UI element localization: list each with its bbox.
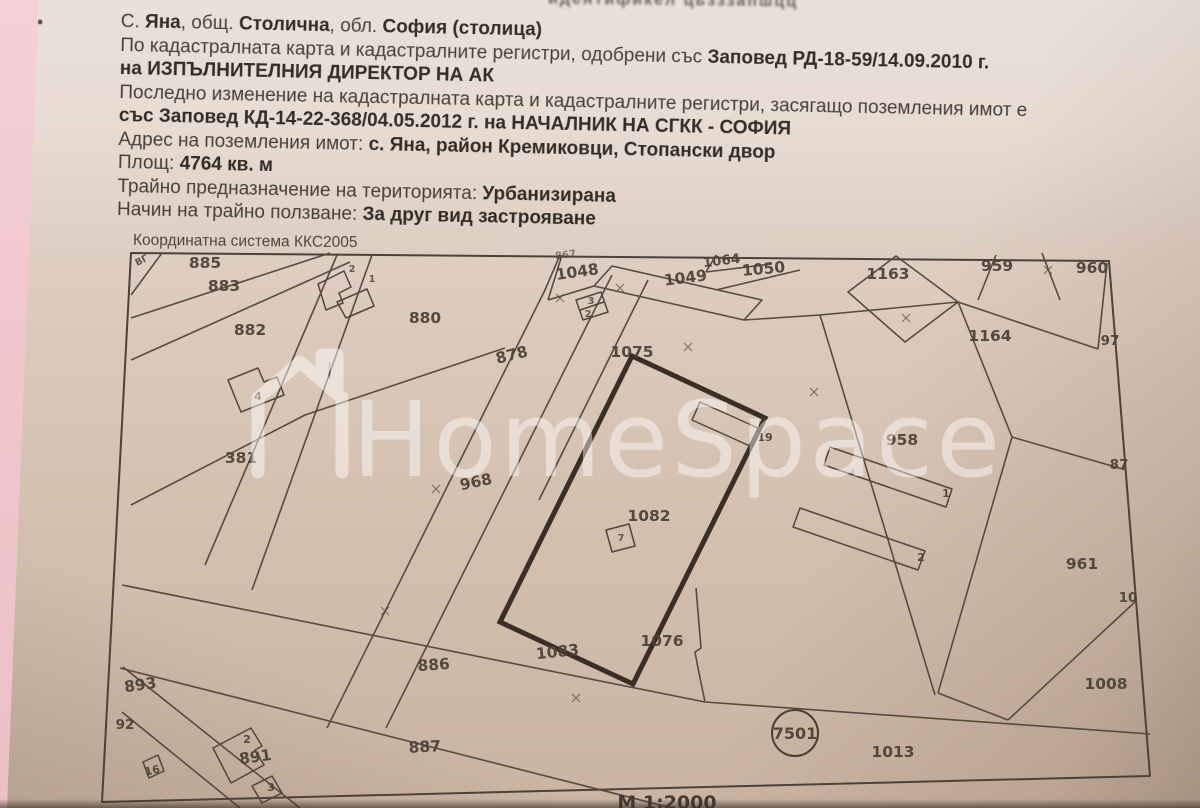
parcel-label-1048: 1048 — [555, 260, 600, 284]
parcel-label-1008: 1008 — [1084, 675, 1127, 693]
text-segment: Столична — [239, 13, 330, 36]
text-segment: Яна — [145, 11, 181, 33]
paper-speck — [38, 20, 43, 25]
building-label-2: 2 — [917, 551, 925, 564]
parcel-label-878: 878 — [494, 343, 530, 368]
parcel-labels: 885 883 882 880 878 381 968 1048 867 104… — [116, 249, 1138, 769]
text-segment: , обл. — [329, 15, 382, 37]
text-segment: Заповед РД-18-59/14.09.2010 г. — [707, 46, 989, 73]
parcel-label-886: 886 — [417, 655, 451, 675]
parcel-label-87-partial: 87 — [1110, 457, 1129, 473]
text-segment: Адрес на поземления имот: — [118, 128, 369, 154]
parcel-label-959: 959 — [981, 257, 1013, 275]
parcel-label-1075: 1075 — [610, 343, 653, 361]
parcel-label-891: 891 — [238, 746, 273, 768]
parcel-label-1082: 1082 — [627, 507, 670, 525]
building-label-16: 16 — [143, 763, 161, 779]
parcel-label-882: 882 — [234, 321, 266, 339]
parcel-label-887: 887 — [408, 737, 441, 757]
parcel-label-1164: 1164 — [968, 327, 1011, 345]
parcel-label-1050: 1050 — [741, 258, 786, 280]
building-label-3-small: 3 — [588, 296, 595, 307]
text-segment: София (столица) — [382, 16, 542, 40]
text-segment: Урбанизирана — [482, 183, 616, 207]
parcel-label-883: 883 — [208, 277, 240, 295]
parcel-label-partial-867: 867 — [555, 249, 577, 263]
point-label-7501: 7501 — [773, 724, 818, 743]
parcel-label-961: 961 — [1066, 555, 1098, 573]
building-label-2-small: 2 — [585, 309, 592, 320]
parcel-label-1083: 1083 — [535, 641, 580, 663]
watermark-text: HomeSpace — [352, 379, 1003, 501]
parcel-label-10-partial: 10 — [1119, 590, 1138, 606]
parcel-label-97-partial: 97 — [1101, 333, 1120, 349]
coordinate-system-label: Координатна система ККС2005 — [133, 232, 358, 252]
building-label-1-strip: 1 — [369, 274, 376, 285]
photographed-cadastral-document: { "document": { "cropped_top_line": "иде… — [0, 0, 1200, 808]
building-label-2-west: 2 — [243, 733, 251, 746]
parcel-label-1076: 1076 — [640, 632, 683, 650]
parcel-label-885: 885 — [189, 254, 221, 272]
parcel-label-893: 893 — [123, 674, 158, 696]
text-segment: За друг вид застрояване — [362, 204, 596, 230]
text-segment: Начин на трайно ползване: — [117, 199, 363, 225]
text-segment: Площ: — [118, 152, 180, 174]
parcel-label-1163: 1163 — [866, 265, 909, 283]
text-segment: 4764 кв. м — [179, 153, 273, 176]
watermark: HomeSpace — [258, 355, 1003, 501]
photo-bottom-dark-edge — [0, 799, 1200, 808]
text-segment: , общ. — [181, 12, 240, 34]
parcel-label-880: 880 — [409, 309, 442, 327]
building-label-7: 7 — [618, 533, 625, 544]
parcel-label-960: 960 — [1076, 259, 1109, 277]
building-label-2-strip: 2 — [349, 264, 356, 275]
text-segment: С. — [121, 11, 146, 32]
parcel-label-92-partial: 92 — [116, 717, 135, 733]
corner-mark-label: ВГ — [133, 253, 150, 269]
building-label-3-west: 3 — [267, 781, 275, 794]
document-header: С. Яна, общ. Столична, обл. София (столи… — [117, 10, 1141, 242]
parcel-label-1013: 1013 — [871, 743, 914, 761]
